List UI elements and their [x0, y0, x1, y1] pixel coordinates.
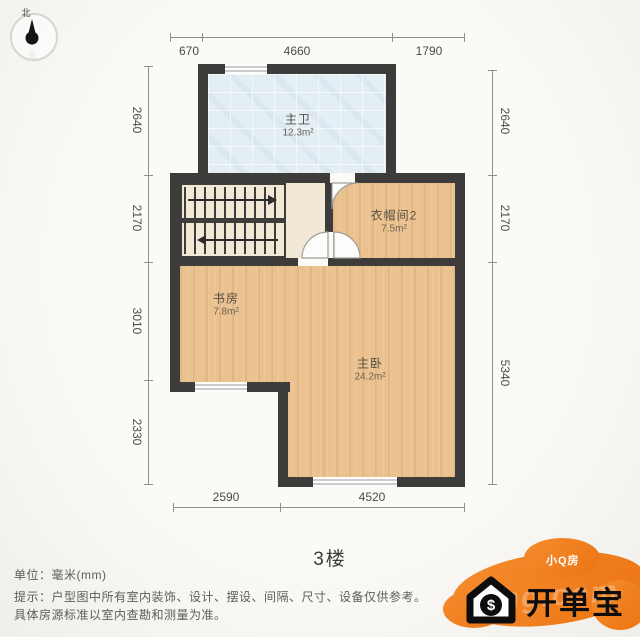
study-label: 书房 7.8m²: [213, 291, 239, 319]
watermark-sub-brand: 小Q房: [546, 552, 580, 568]
dim-tick: [144, 66, 153, 67]
bedroom-area: 24.2m²: [354, 371, 385, 384]
dim-top-4660: 4660: [284, 44, 311, 58]
dim-tick: [280, 503, 281, 512]
dim-left-2330: 2330: [130, 419, 144, 446]
dim-right-5340: 5340: [498, 360, 512, 387]
floor-plan-page: 北 南 主卫 12.3m² 衣帽间2 7: [0, 0, 640, 637]
dim-line-right: [492, 70, 493, 485]
dim-bottom-2590: 2590: [213, 490, 240, 504]
dim-line-left: [148, 66, 149, 485]
dim-tick: [170, 33, 171, 42]
watermark-brand: 开单宝: [526, 578, 625, 623]
dim-top-1790: 1790: [416, 44, 443, 58]
dim-tick: [144, 380, 153, 381]
stair-arrow-down-head: [197, 235, 206, 245]
bathroom-area: 12.3m²: [282, 127, 313, 140]
dim-top-670: 670: [179, 44, 199, 58]
cloakroom-area: 7.5m²: [371, 223, 418, 236]
door-arc-bathroom: [332, 183, 358, 209]
footer-unit-line: 单位：毫米(mm): [14, 566, 107, 583]
bedroom-name: 主卧: [354, 356, 385, 371]
dim-left-2170: 2170: [130, 205, 144, 232]
door-arc-cloakroom: [334, 232, 360, 258]
dim-tick: [392, 33, 393, 42]
bedroom-label: 主卧 24.2m²: [354, 356, 385, 384]
dim-tick: [464, 503, 465, 512]
cloakroom-name: 衣帽间2: [371, 208, 418, 223]
footer-note-line2: 具体房源标准以室内查勘和测量为准。: [14, 606, 227, 623]
bathroom-label: 主卫 12.3m²: [282, 112, 313, 140]
house-dollar-icon: $: [462, 570, 520, 626]
dim-bottom-4520: 4520: [359, 490, 386, 504]
dim-left-3010: 3010: [130, 308, 144, 335]
bathroom-name: 主卫: [282, 112, 313, 127]
cloakroom-label: 衣帽间2 7.5m²: [371, 208, 418, 236]
dim-tick: [488, 262, 497, 263]
footer-note-line1: 提示：户型图中所有室内装饰、设计、摆设、间隔、尺寸、设备仅供参考。: [14, 588, 427, 605]
dim-left-2640: 2640: [130, 107, 144, 134]
dim-tick: [464, 33, 465, 42]
dim-tick: [173, 503, 174, 512]
dim-line-bottom: [173, 507, 465, 508]
dim-tick: [488, 484, 497, 485]
study-name: 书房: [213, 291, 239, 306]
dim-tick: [144, 175, 153, 176]
stair-arrow-up-head: [268, 195, 277, 205]
dim-tick: [144, 484, 153, 485]
dim-tick: [488, 70, 497, 71]
dim-tick: [202, 33, 203, 42]
dim-right-2170: 2170: [498, 205, 512, 232]
dim-line-top: [170, 37, 465, 38]
floor-title: 3楼: [313, 544, 347, 571]
study-area: 7.8m²: [213, 306, 239, 319]
door-arc-corridor: [302, 232, 328, 258]
dim-tick: [144, 262, 153, 263]
svg-text:$: $: [487, 597, 496, 614]
dim-tick: [488, 175, 497, 176]
dim-right-2640: 2640: [498, 108, 512, 135]
